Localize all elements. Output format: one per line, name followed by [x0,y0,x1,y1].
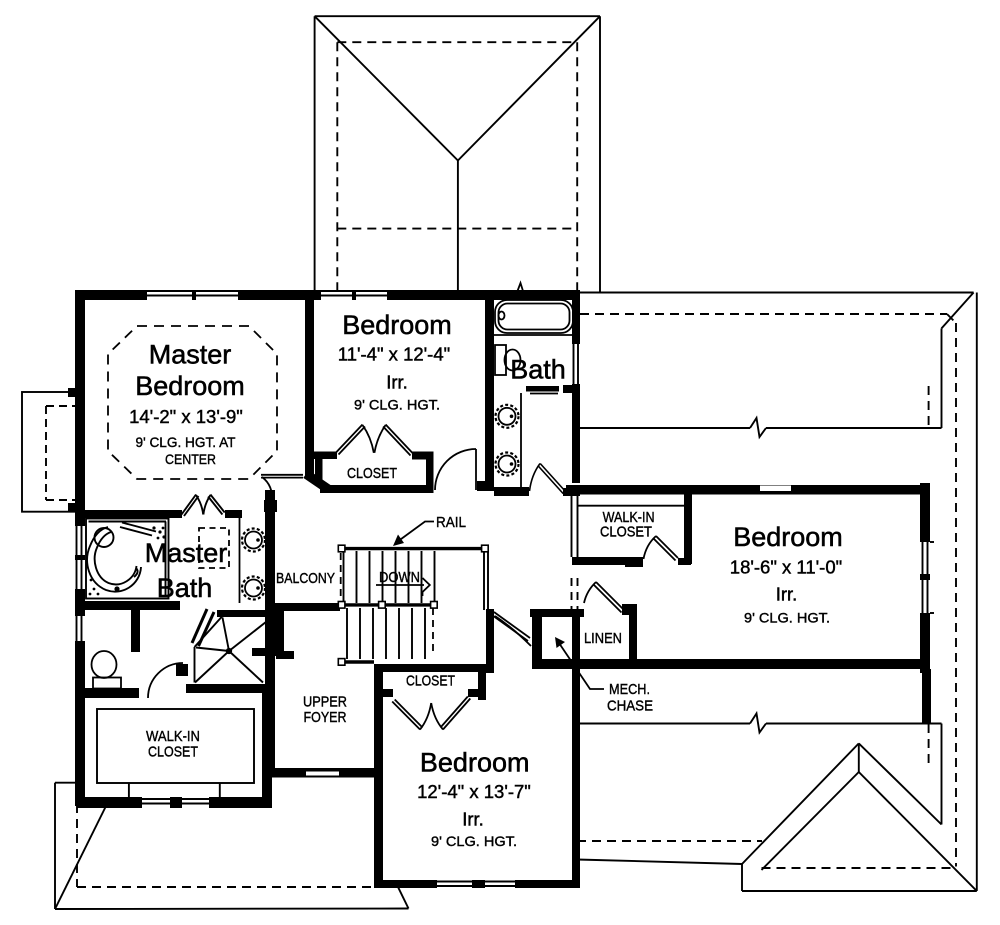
svg-text:18'-6" x 11'-0": 18'-6" x 11'-0" [730,557,842,578]
svg-text:Bedroom: Bedroom [733,522,843,552]
svg-text:9' CLG. HGT.: 9' CLG. HGT. [431,833,517,849]
svg-text:WALK-IN: WALK-IN [146,728,200,745]
svg-text:9' CLG. HGT.: 9' CLG. HGT. [744,610,830,626]
svg-text:LINEN: LINEN [584,630,622,647]
svg-text:CHASE: CHASE [607,698,653,715]
svg-text:9' CLG. HGT. AT: 9' CLG. HGT. AT [136,434,236,450]
svg-text:14'-2" x 13'-9": 14'-2" x 13'-9" [129,406,243,427]
svg-text:CLOSET: CLOSET [406,673,455,690]
svg-text:Irr.: Irr. [776,584,798,605]
svg-text:CENTER: CENTER [165,451,216,467]
svg-text:BALCONY: BALCONY [276,570,335,587]
svg-text:Bedroom: Bedroom [342,310,452,340]
svg-text:Bedroom: Bedroom [135,371,245,401]
svg-text:Bedroom: Bedroom [420,748,530,778]
svg-text:Irr.: Irr. [386,372,408,393]
svg-text:CLOSET: CLOSET [347,465,397,482]
svg-text:DOWN: DOWN [379,569,420,586]
svg-text:CLOSET: CLOSET [148,744,198,761]
svg-text:11'-4" x 12'-4": 11'-4" x 12'-4" [338,344,450,365]
svg-text:9' CLG. HGT.: 9' CLG. HGT. [354,397,440,413]
svg-text:Master: Master [145,538,228,568]
svg-text:12'-4" x 13'-7": 12'-4" x 13'-7" [417,781,531,802]
svg-text:UPPER: UPPER [303,694,347,711]
svg-text:RAIL: RAIL [436,514,466,531]
svg-text:Irr.: Irr. [462,809,484,830]
svg-text:Master: Master [149,340,232,370]
svg-text:Bath: Bath [157,573,213,603]
svg-text:FOYER: FOYER [304,709,347,726]
svg-text:MECH.: MECH. [609,681,650,698]
svg-text:CLOSET: CLOSET [600,524,652,541]
svg-text:Bath: Bath [510,355,566,385]
